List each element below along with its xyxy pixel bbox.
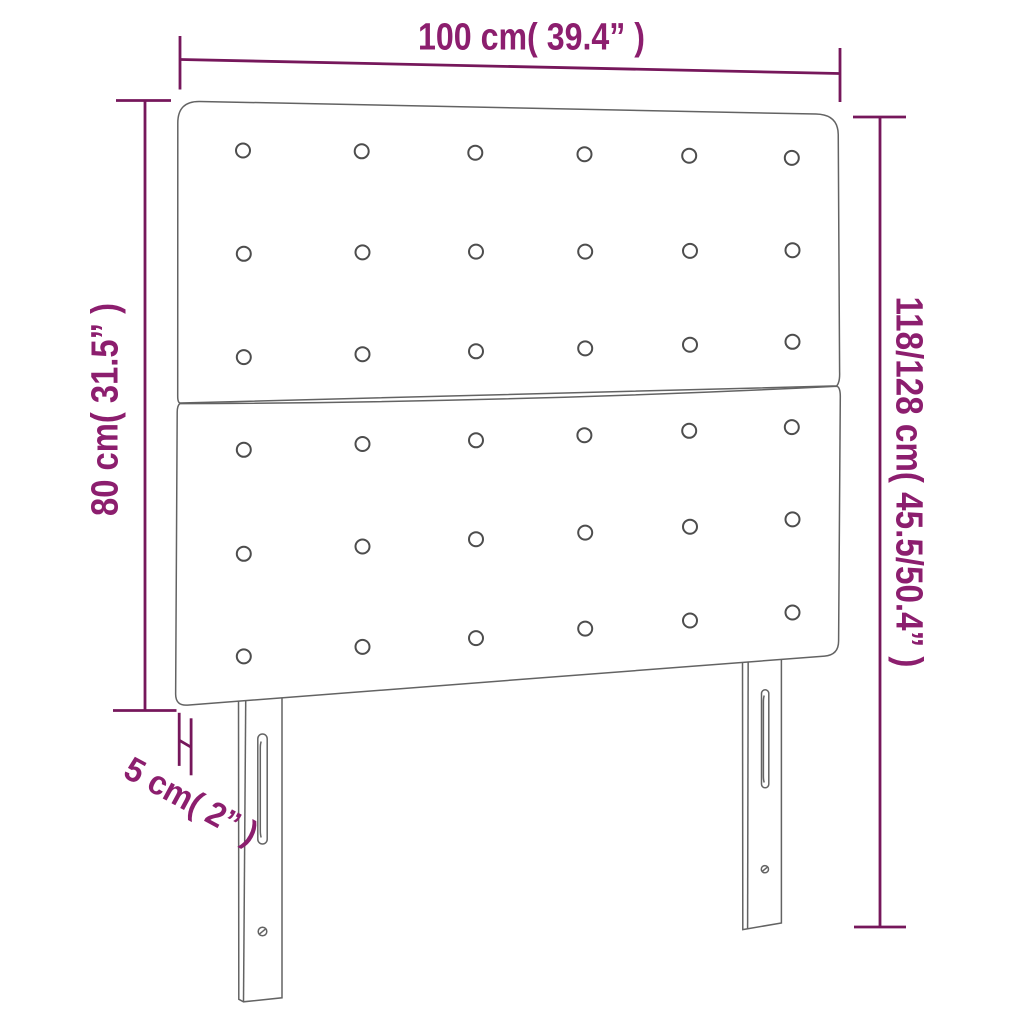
- svg-text:80 cm( 31.5” ): 80 cm( 31.5” ): [85, 303, 127, 516]
- svg-text:118/128 cm( 45.5/50.4” ): 118/128 cm( 45.5/50.4” ): [888, 297, 930, 668]
- svg-text:100 cm( 39.4” ): 100 cm( 39.4” ): [418, 17, 645, 59]
